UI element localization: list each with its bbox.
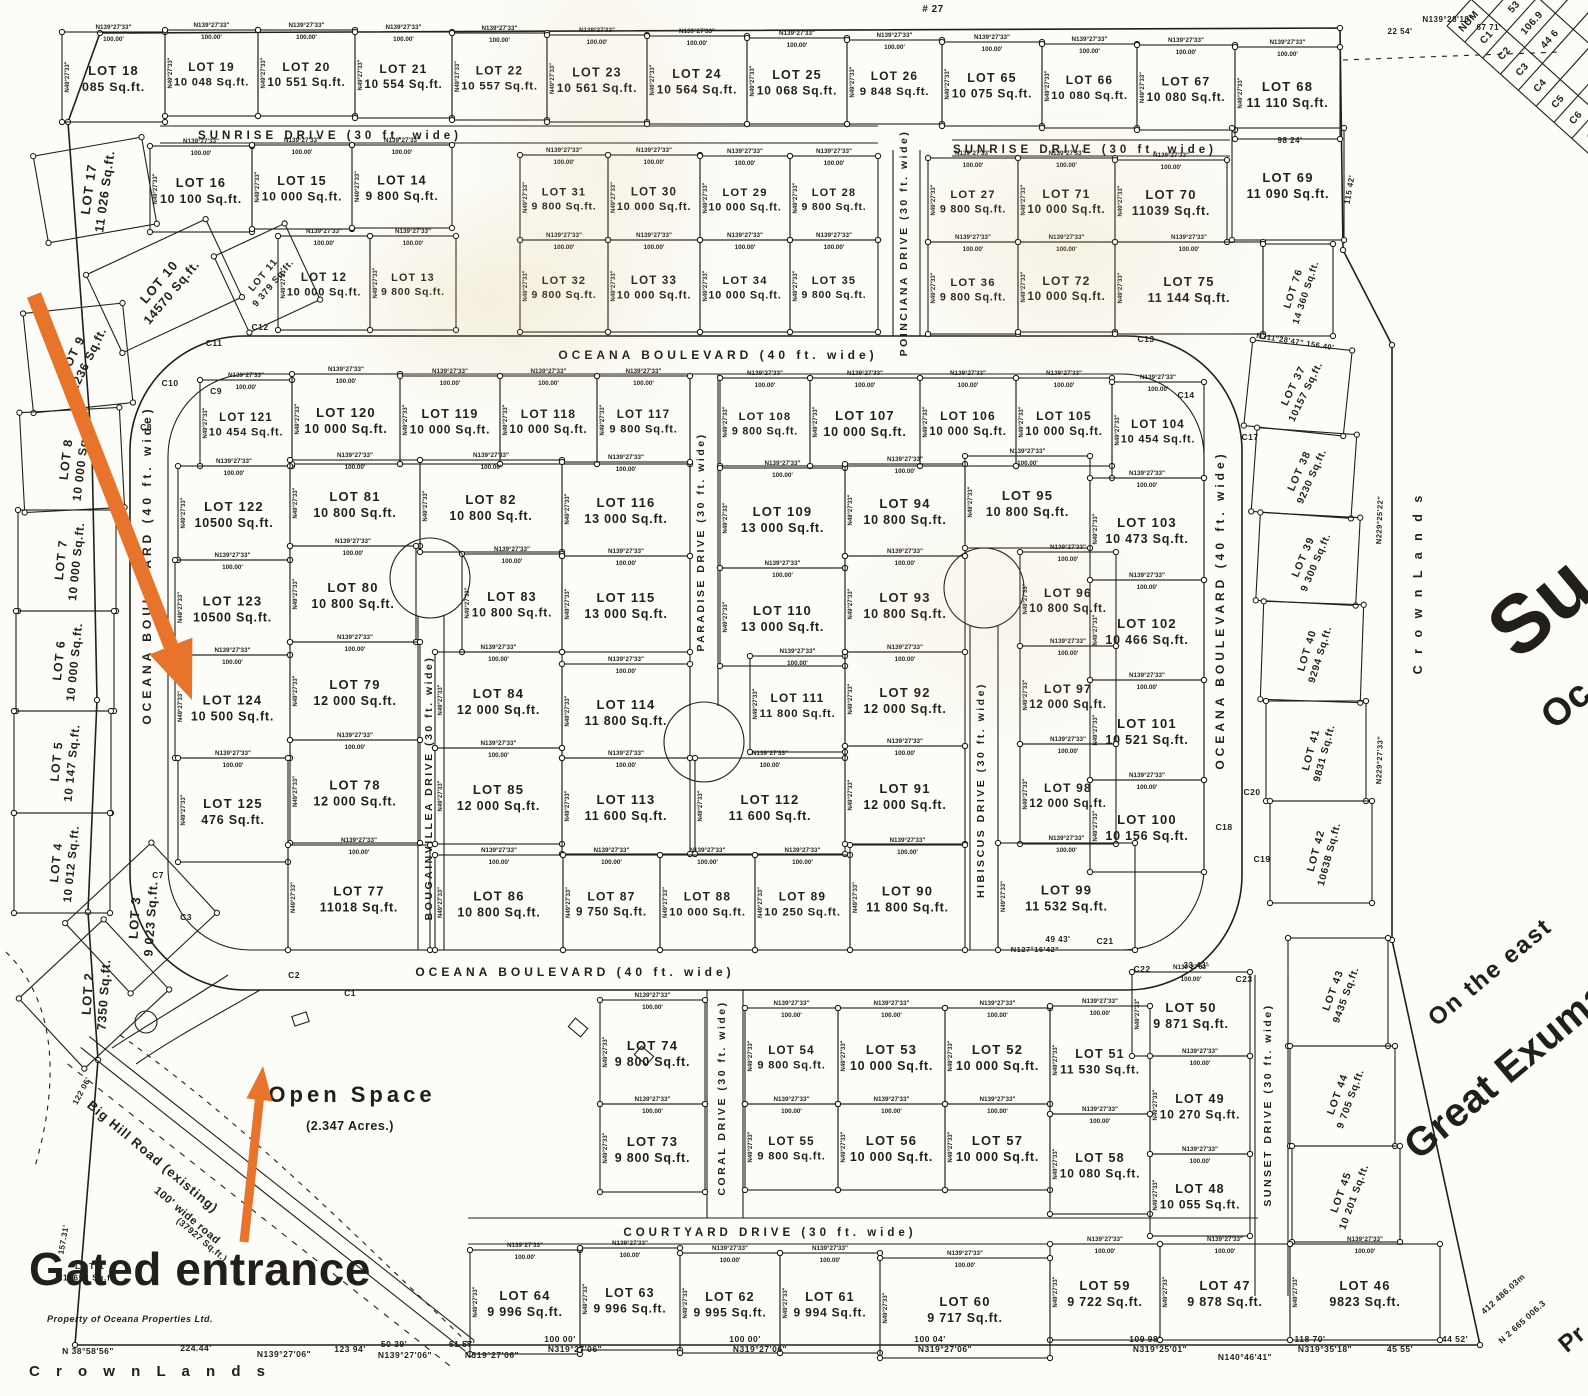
- entrance-road: [112, 975, 228, 1048]
- lot-99-area: 11 532 Sq.ft.: [1025, 900, 1108, 914]
- map-text: 100.00': [502, 558, 523, 565]
- lot-34-label: LOT 3410 000 Sq.ft.: [708, 275, 781, 301]
- lot-116-number: LOT 116: [597, 495, 656, 510]
- map-text: N139°27'33": [625, 367, 661, 375]
- map-text: N49°27'33": [473, 1286, 479, 1317]
- map-text: N139°27'33": [816, 231, 852, 239]
- map-text: C8: [140, 422, 152, 432]
- survey-pin: [644, 33, 649, 38]
- lot-74-number: LOT 74: [627, 1038, 678, 1053]
- lot-95-label: LOT 9510 800 Sq.ft.: [986, 488, 1069, 519]
- lot-5-number: LOT 5: [47, 741, 65, 783]
- map-text: N139°27'33": [779, 647, 815, 655]
- survey-pin: [1263, 698, 1268, 703]
- survey-pin: [717, 375, 722, 380]
- lot-51-area: 11 530 Sq.ft.: [1060, 1063, 1140, 1077]
- map-text: N49°27'33": [841, 1040, 847, 1071]
- map-text: N319°27'06": [918, 1344, 972, 1354]
- map-text: N139°27'33": [1153, 151, 1189, 159]
- lot-14-area: 9 800 Sq.ft.: [366, 189, 439, 203]
- map-text: N49°27'33": [1021, 271, 1027, 302]
- map-text: N139°27'33": [747, 369, 783, 377]
- lot-116: LOT 11613 000 Sq.ft.N139°27'33"100.00'N4…: [559, 453, 692, 559]
- map-text: N139°27'33": [328, 365, 364, 373]
- lot-58-label: LOT 5810 080 Sq.ft.: [1060, 1151, 1140, 1181]
- lot-16-area: 10 100 Sq.ft.: [160, 192, 242, 206]
- survey-pin: [844, 37, 849, 42]
- map-text: 100.00': [292, 149, 313, 156]
- survey-pin: [1201, 577, 1206, 582]
- map-text: 100.00': [616, 466, 637, 473]
- lot-15-area: 10 000 Sq.ft.: [262, 190, 342, 204]
- map-text: N49°27'33": [1093, 714, 1099, 745]
- survey-pin: [742, 1187, 747, 1192]
- map-text: N319°25'01": [1133, 1344, 1187, 1354]
- hash-27: # 27: [922, 4, 943, 15]
- lot-59-number: LOT 59: [1079, 1278, 1130, 1293]
- lot-110-area: 13 000 Sq.ft.: [741, 620, 824, 634]
- boundary-dashed-line: [1343, 52, 1560, 60]
- survey-pin: [162, 27, 167, 32]
- lot-94-number: LOT 94: [879, 496, 930, 511]
- map-text: N49°27'33": [931, 184, 937, 215]
- survey-pin: [752, 947, 757, 952]
- map-text: 100.00': [642, 1004, 663, 1011]
- lot-61-number: LOT 61: [805, 1290, 855, 1304]
- lot-71: LOT 7110 000 Sq.ft.N139°27'33"100.00'N49…: [1015, 149, 1117, 245]
- survey-pin: [45, 240, 51, 246]
- map-text: 100.00': [488, 656, 509, 663]
- map-text: N49°27'33": [611, 270, 617, 301]
- survey-pin: [1287, 1337, 1292, 1342]
- lot-17: LOT 1711 026 Sq.ft.: [30, 134, 160, 246]
- survey-pin: [1337, 25, 1342, 30]
- lot-31-number: LOT 31: [542, 187, 587, 199]
- lot-117-label: LOT 1179 800 Sq.ft.: [609, 408, 677, 436]
- survey-pin: [275, 233, 280, 238]
- lot-98-label: LOT 9812 000 Sq.ft.: [1029, 781, 1107, 810]
- survey-pin: [787, 237, 792, 242]
- map-text: C9: [210, 386, 222, 396]
- map-text: N139°27'33": [1087, 1235, 1123, 1243]
- survey-pin: [367, 233, 372, 238]
- map-text: N49°27'33": [753, 688, 759, 719]
- lot-50-label: LOT 509 871 Sq.ft.: [1153, 1000, 1229, 1031]
- lot-115: LOT 11513 000 Sq.ft.N139°27'33"100.00'N4…: [559, 547, 692, 655]
- map-text: 100.00': [1056, 162, 1077, 169]
- map-text: N49°27'33": [1021, 184, 1027, 215]
- map-text: 100.00': [620, 1252, 641, 1259]
- lot-52-area: 10 000 Sq.ft.: [956, 1059, 1039, 1073]
- map-text: 100.00': [515, 1254, 536, 1261]
- map-text: 123 94': [334, 1344, 366, 1354]
- map-text: N139°27'33": [873, 999, 909, 1007]
- lot-115-label: LOT 11513 000 Sq.ft.: [584, 590, 667, 621]
- survey-pin: [995, 840, 1000, 845]
- survey-pin: [1330, 333, 1335, 338]
- lot-55-area: 9 800 Sq.ft.: [757, 1151, 825, 1163]
- street-hibiscus-label: HIBISCUS DRIVE (30 ft. wide): [975, 682, 987, 898]
- map-text: 100.00': [1190, 1060, 1211, 1067]
- lot-106-number: LOT 106: [940, 409, 996, 423]
- survey-pin: [657, 852, 662, 857]
- survey-pin: [1015, 329, 1020, 334]
- map-text: 100.00': [955, 1262, 976, 1269]
- lot-28: LOT 289 800 Sq.ft.N139°27'33"100.00'N49°…: [787, 147, 880, 243]
- survey-pin: [559, 459, 564, 464]
- structure: [568, 1018, 587, 1037]
- survey-pin: [1201, 379, 1206, 384]
- survey-pin: [687, 553, 692, 558]
- survey-pin: [417, 737, 422, 742]
- highlight-arrow: [34, 295, 192, 700]
- map-text: 100.00': [201, 34, 222, 41]
- map-text: N49°27'33": [503, 404, 509, 435]
- lot-102-label: LOT 10210 466 Sq.ft.: [1105, 616, 1188, 647]
- map-text: 100.00': [223, 762, 244, 769]
- lot-100-label: LOT 10010 156 Sq.ft.: [1105, 812, 1188, 843]
- lot-26-number: LOT 26: [871, 69, 918, 83]
- survey-pin: [287, 543, 292, 548]
- survey-pin: [175, 755, 180, 760]
- survey-pin: [239, 294, 246, 301]
- lot-101-number: LOT 101: [1117, 716, 1177, 731]
- map-text: N139°27'33": [764, 459, 800, 467]
- lot-125-number: LOT 125: [203, 796, 263, 811]
- survey-pin: [432, 852, 437, 857]
- lot-19-number: LOT 19: [188, 61, 235, 74]
- survey-pin: [842, 743, 847, 748]
- survey-pin: [1039, 125, 1044, 130]
- map-text: N139°27'33": [1082, 997, 1118, 1005]
- lot-75-number: LOT 75: [1163, 274, 1214, 289]
- survey-pin: [147, 143, 152, 148]
- lot-64-label: LOT 649 996 Sq.ft.: [487, 1288, 563, 1319]
- map-text: N139°27'33": [306, 227, 342, 235]
- survey-pin: [1017, 741, 1022, 746]
- map-text: 100.00': [1277, 51, 1298, 58]
- street-oceana-boulevard-label: OCEANA BOULEVARD (40 ft. wide): [558, 348, 877, 362]
- survey-pin: [702, 1101, 707, 1106]
- street-paradise-label: PARADISE DRIVE (30 ft. wide): [695, 432, 707, 651]
- lot-92-number: LOT 92: [879, 685, 930, 700]
- map-text: N139°27'33": [1050, 543, 1086, 551]
- lot-70-number: LOT 70: [1145, 187, 1196, 202]
- map-text: 109 98': [1129, 1334, 1161, 1344]
- survey-pin: [162, 119, 167, 124]
- title-su: Su: [1471, 538, 1588, 676]
- street-hibiscus: HIBISCUS DRIVE (30 ft. wide): [970, 626, 998, 950]
- survey-pin: [597, 1189, 602, 1194]
- survey-pin: [687, 373, 692, 378]
- lot-43: LOT 439435 Sq.ft.: [1285, 935, 1390, 1048]
- map-text: N139°27'33": [1140, 373, 1176, 381]
- survey-pin: [1287, 1241, 1292, 1246]
- lot-45: LOT 4510 201 Sq.ft.: [1289, 1143, 1402, 1244]
- survey-pin: [939, 39, 944, 44]
- lot-72: LOT 7210 000 Sq.ft.N139°27'33"100.00'N49…: [1015, 233, 1117, 335]
- lot-79-number: LOT 79: [329, 677, 380, 692]
- lot-63: LOT 639 996 Sq.ft.N139°27'33"100.00'N49°…: [577, 1239, 682, 1353]
- map-text: N139°27'33": [979, 999, 1015, 1007]
- lot-47-label: LOT 479 878 Sq.ft.: [1187, 1278, 1263, 1309]
- map-text: N49°27'33": [1023, 778, 1029, 809]
- lot-89: LOT 8910 250 Sq.ft.N139°27'33"100.00'N49…: [752, 846, 852, 953]
- survey-pin: [1039, 41, 1044, 46]
- map-text: N49°27'33": [438, 780, 444, 811]
- lot-23-number: LOT 23: [572, 66, 622, 80]
- map-text: 100.00': [349, 849, 370, 856]
- lot-112-number: LOT 112: [741, 792, 800, 807]
- lot-92-area: 12 000 Sq.ft.: [863, 702, 946, 716]
- plat-map: OCEANA BOULEVARD (40 ft. wide)OCEANA BOU…: [0, 0, 1588, 1396]
- map-text: C10: [161, 378, 178, 388]
- survey-pin: [942, 1187, 947, 1192]
- lot-125: LOT 125476 Sq.ft.N139°27'33"100.00'N49°2…: [175, 749, 290, 865]
- lot-107-label: LOT 10710 000 Sq.ft.: [823, 408, 906, 439]
- map-text: N139°27'33": [1129, 771, 1165, 779]
- lot-83-label: LOT 8310 800 Sq.ft.: [472, 590, 552, 620]
- map-text: N49°27'33": [178, 592, 184, 623]
- street-coral: CORAL DRIVE (30 ft. wide): [707, 990, 743, 1218]
- lot-15: LOT 1510 000 Sq.ft.N139°27'33"100.00'N49…: [249, 136, 354, 232]
- survey-pin: [94, 697, 99, 702]
- lot-76: LOT 7614 360 Sq.ft.: [1260, 241, 1335, 338]
- lot-112: LOT 11211 600 Sq.ft.N139°27'33"100.00'N4…: [692, 749, 847, 857]
- map-text: N139°27'33": [887, 643, 923, 651]
- survey-pin: [1247, 1233, 1252, 1238]
- lot-51-number: LOT 51: [1075, 1047, 1125, 1061]
- lot-46-label: LOT 469823 Sq.ft.: [1329, 1278, 1400, 1309]
- map-text: 100.00': [963, 246, 984, 253]
- survey-pin: [942, 1005, 947, 1010]
- map-text: N49°27'33": [1118, 185, 1124, 216]
- map-text: N49°27'33": [438, 684, 444, 715]
- map-text: C7: [152, 870, 164, 880]
- survey-pin: [1354, 432, 1360, 438]
- lot-93-area: 10 800 Sq.ft.: [863, 607, 946, 621]
- lot-24-area: 10 564 Sq.ft.: [657, 83, 737, 97]
- lot-20-number: LOT 20: [282, 60, 330, 74]
- lot-67-area: 10 080 Sq.ft.: [1147, 91, 1226, 104]
- map-text: C12: [251, 322, 268, 332]
- survey-pin: [453, 233, 458, 238]
- lot-86-number: LOT 86: [473, 889, 524, 904]
- survey-pin: [1147, 1111, 1152, 1116]
- map-text: 100.00': [982, 46, 1003, 53]
- map-text: N139°27'33": [1168, 36, 1204, 44]
- lot-116-area: 13 000 Sq.ft.: [584, 512, 667, 526]
- survey-pin: [687, 459, 692, 464]
- map-text: N127°16'42": [1011, 945, 1059, 954]
- lot-77-label: LOT 7711018 Sq.ft.: [320, 884, 398, 915]
- lot-34: LOT 3410 000 Sq.ft.N139°27'33"100.00'N49…: [697, 231, 792, 335]
- survey-pin: [787, 329, 792, 334]
- lot-6-label: LOT 610 000 Sq.ft.: [48, 620, 85, 702]
- lot-49-number: LOT 49: [1175, 1092, 1225, 1106]
- survey-pin: [752, 852, 757, 857]
- lot-85: LOT 8512 000 Sq.ft.N139°27'33"100.00'N49…: [432, 739, 564, 847]
- map-text: N49°27'33": [523, 270, 529, 301]
- lot-97-label: LOT 9712 000 Sq.ft.: [1029, 682, 1107, 711]
- lot-69-label: LOT 6911 090 Sq.ft.: [1247, 170, 1330, 201]
- lot-123-label: LOT 12310500 Sq.ft.: [193, 594, 272, 625]
- survey-pin: [432, 947, 437, 952]
- survey-pin: [1112, 239, 1117, 244]
- lot-114-area: 11 800 Sq.ft.: [585, 714, 668, 728]
- lot-20-area: 10 551 Sq.ft.: [267, 76, 345, 89]
- map-text: N49°27'33": [1053, 1276, 1059, 1307]
- map-text: N139°27'33": [546, 146, 582, 154]
- map-text: N139°27'33": [593, 846, 629, 854]
- street-coral-label: CORAL DRIVE (30 ft. wide): [716, 1000, 728, 1195]
- map-text: N139°27'33": [847, 369, 883, 377]
- survey-pin: [742, 1005, 747, 1010]
- lot-26: LOT 269 848 Sq.ft.N139°27'33"100.00'N49°…: [844, 31, 944, 127]
- survey-pin: [413, 543, 418, 548]
- survey-pin: [1134, 127, 1139, 132]
- map-text: 100.00': [616, 762, 637, 769]
- map-text: 100 04': [914, 1334, 946, 1344]
- lot-15-label: LOT 1510 000 Sq.ft.: [262, 174, 342, 204]
- lot-7-label: LOT 710 000 Sq.ft.: [50, 520, 87, 602]
- survey-pin: [1232, 136, 1237, 141]
- map-text: 100.00': [616, 668, 637, 675]
- lot-104-area: 10 454 Sq.ft.: [1121, 434, 1196, 446]
- survey-pin: [844, 121, 849, 126]
- lot-18-label: LOT 18085 Sq.ft.: [82, 63, 145, 94]
- map-text: N229°27'33": [1374, 736, 1385, 785]
- survey-pin: [11, 810, 16, 815]
- lot-34-area: 10 000 Sq.ft.: [708, 289, 781, 301]
- lot-35-area: 9 800 Sq.ft.: [801, 289, 866, 301]
- survey-pin: [1341, 237, 1346, 242]
- survey-pin: [467, 1247, 472, 1252]
- map-text: N139°27'33": [335, 537, 371, 545]
- lot-88-area: 10 000 Sq.ft.: [669, 906, 746, 918]
- lot-95: LOT 9510 800 Sq.ft.N139°27'33"100.00'N49…: [962, 447, 1092, 551]
- survey-pin: [687, 661, 692, 666]
- survey-pin: [962, 743, 967, 748]
- survey-pin: [962, 453, 967, 458]
- lot-106: LOT 10610 000 Sq.ft.N139°27'33"100.00'N4…: [917, 369, 1018, 469]
- lot-18-number: LOT 18: [88, 63, 139, 78]
- map-text: N139°27'33": [507, 1241, 543, 1249]
- map-text: 100.00': [1148, 386, 1169, 393]
- map-text: 100.00': [1215, 1248, 1236, 1255]
- lot-16-number: LOT 16: [176, 175, 226, 190]
- map-text: N139°27'33": [636, 146, 672, 154]
- map-text: 100.00': [1090, 1118, 1111, 1125]
- survey-pin: [349, 225, 354, 230]
- lot-37: LOT 3710157 Sq.ft.: [1241, 337, 1355, 439]
- map-text: N49°27'33": [565, 588, 571, 619]
- lot-96-area: 10 800 Sq.ft.: [1029, 603, 1107, 615]
- map-text: N49°27'33": [1293, 1276, 1299, 1307]
- map-text: N139°27'33": [579, 26, 615, 34]
- lot-89-number: LOT 89: [779, 890, 826, 904]
- survey-pin: [1047, 1355, 1052, 1360]
- map-text: 100.00': [881, 1012, 902, 1019]
- lot-98-area: 12 000 Sq.ft.: [1029, 798, 1107, 810]
- map-text: N49°27'33": [550, 63, 556, 94]
- map-text: N49°27'33": [1053, 1148, 1059, 1179]
- map-text: N49°27'33": [923, 406, 929, 437]
- lot-58: LOT 5810 080 Sq.ft.N139°27'33"100.00'N49…: [1047, 1105, 1152, 1217]
- curve-table-row: C2: [1496, 45, 1513, 63]
- map-text: 100.00': [191, 150, 212, 157]
- lot-103: LOT 10310 473 Sq.ft.N139°27'33"100.00'N4…: [1087, 469, 1206, 583]
- lot-19: LOT 1910 048 Sq.ft.N139°27'33"100.00'N49…: [162, 21, 260, 119]
- map-text: 100.00': [1090, 1010, 1111, 1017]
- survey-pin: [119, 349, 126, 356]
- map-text: N139°27'33": [1129, 469, 1165, 477]
- lot-30-label: LOT 3010 000 Sq.ft.: [617, 187, 692, 214]
- lot-31: LOT 319 800 Sq.ft.N139°27'33"100.00'N49°…: [517, 146, 610, 243]
- map-text: 100.00': [1181, 976, 1202, 983]
- map-text: N49°27'33": [703, 182, 709, 213]
- map-text: 100.00': [1095, 1248, 1116, 1255]
- street-oceana-boulevard-label: OCEANA BOULEVARD (40 ft. wide): [415, 965, 734, 979]
- lot-85-label: LOT 8512 000 Sq.ft.: [457, 782, 540, 813]
- lot-66-area: 10 080 Sq.ft.: [1051, 90, 1128, 102]
- map-text: N139°27'33": [183, 137, 219, 145]
- lot-16: LOT 1610 100 Sq.ft.N139°27'33"100.00'N49…: [147, 137, 254, 235]
- lot-112-label: LOT 11211 600 Sq.ft.: [729, 792, 812, 823]
- survey-pin: [1047, 1255, 1052, 1260]
- map-text: N139°27'33": [1071, 35, 1107, 43]
- survey-pin: [597, 1101, 602, 1106]
- lot-17-area: 11 026 Sq.ft.: [92, 149, 117, 233]
- lot-60-number: LOT 60: [939, 1294, 990, 1309]
- survey-pin: [962, 842, 967, 847]
- survey-pin: [835, 1101, 840, 1106]
- lot-43-label: LOT 439435 Sq.ft.: [1318, 961, 1362, 1025]
- lot-99-number: LOT 99: [1041, 883, 1092, 898]
- map-text: 100.00': [345, 646, 366, 653]
- lot-46: LOT 469823 Sq.ft.N139°27'33"100.00'N49°2…: [1287, 1235, 1442, 1343]
- lot-110-number: LOT 110: [753, 603, 812, 618]
- map-text: N49°27'33": [293, 578, 299, 609]
- lot-7: LOT 710 000 Sq.ft.: [15, 507, 118, 613]
- survey-pin: [154, 221, 160, 227]
- lot-20-label: LOT 2010 551 Sq.ft.: [267, 60, 345, 89]
- survey-pin: [1369, 798, 1374, 803]
- lot-117: LOT 1179 800 Sq.ft.N139°27'33"100.00'N49…: [594, 367, 692, 467]
- lot-119-label: LOT 11910 000 Sq.ft.: [410, 407, 490, 437]
- lot-57: LOT 5710 000 Sq.ft.N139°27'33"100.00'N49…: [942, 1095, 1052, 1193]
- lot-47-area: 9 878 Sq.ft.: [1187, 1295, 1263, 1309]
- survey-pin: [432, 841, 437, 846]
- survey-pin: [517, 329, 522, 334]
- survey-pin: [1147, 1053, 1152, 1058]
- survey-pin: [289, 371, 294, 376]
- lot-66-number: LOT 66: [1066, 73, 1113, 87]
- lot-106-label: LOT 10610 000 Sq.ft.: [929, 409, 1007, 438]
- map-text: 100.00': [554, 244, 575, 251]
- survey-pin: [1157, 1241, 1162, 1246]
- map-text: N139°27'33": [812, 1244, 848, 1252]
- lot-114-label: LOT 11411 800 Sq.ft.: [585, 697, 668, 728]
- lot-85-number: LOT 85: [473, 782, 524, 797]
- survey-pin: [1241, 423, 1247, 429]
- survey-pin: [202, 216, 209, 223]
- lot-41: LOT 419831 Sq.ft.: [1263, 698, 1368, 803]
- map-text: N49°27'33": [853, 882, 859, 913]
- survey-pin: [702, 997, 707, 1002]
- lot-23-label: LOT 2310 561 Sq.ft.: [557, 66, 637, 96]
- map-text: 22 54': [1388, 27, 1413, 36]
